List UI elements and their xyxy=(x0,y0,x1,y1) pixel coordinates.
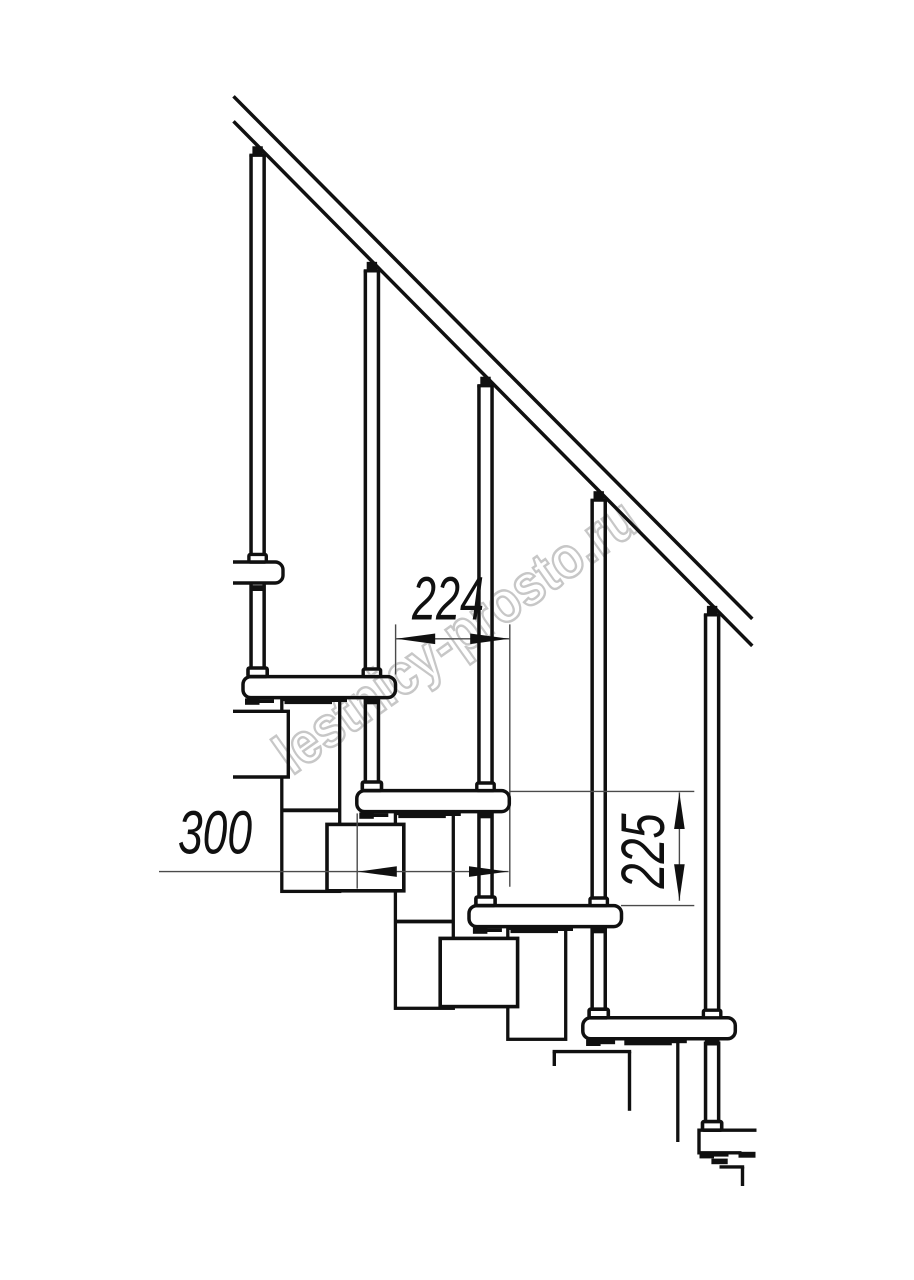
svg-text:lestnicy-prosto.ru: lestnicy-prosto.ru xyxy=(262,486,650,787)
